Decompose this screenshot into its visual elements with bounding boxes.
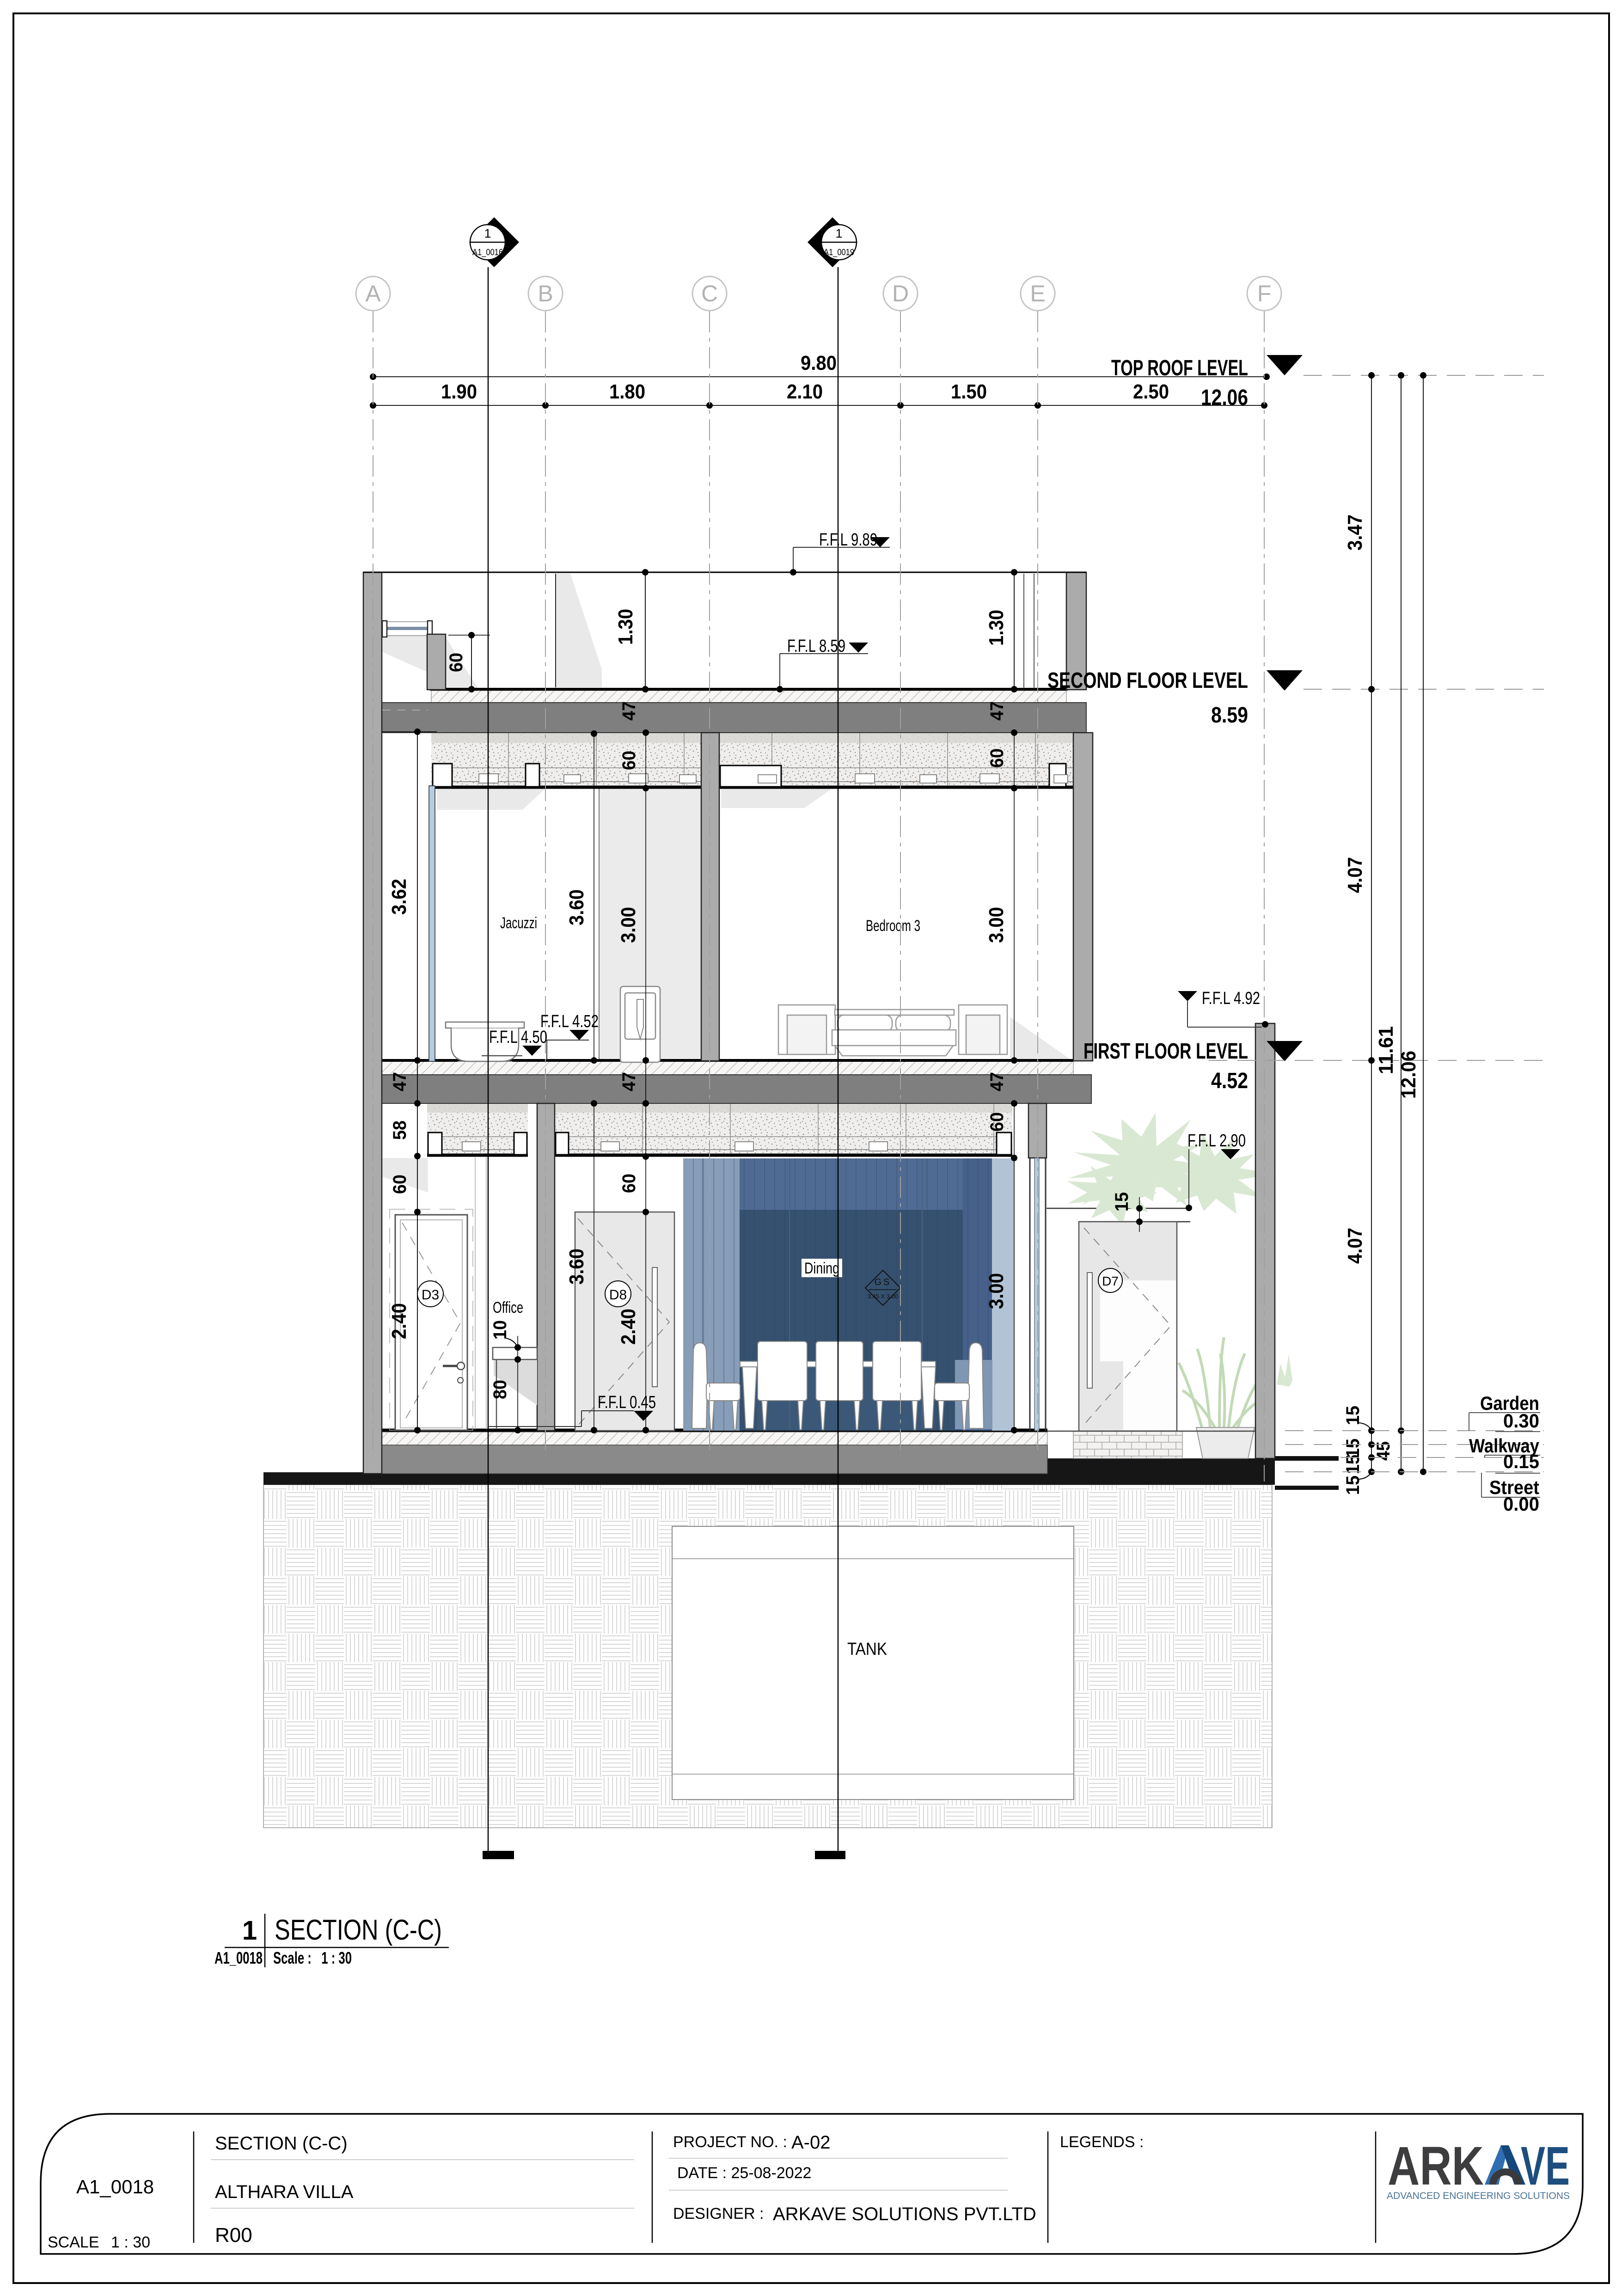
svg-text:1.90: 1.90 (441, 380, 477, 403)
svg-text:TOP ROOF LEVEL: TOP ROOF LEVEL (1111, 356, 1248, 380)
svg-text:0.30: 0.30 (1503, 1410, 1539, 1432)
svg-text:1: 1 (242, 1916, 257, 1946)
svg-text:TANK: TANK (847, 1640, 887, 1659)
svg-text:12.06: 12.06 (1201, 386, 1248, 410)
svg-text:A1_0018: A1_0018 (76, 2176, 154, 2198)
svg-text:80: 80 (490, 1380, 510, 1399)
svg-text:9.80: 9.80 (801, 352, 837, 374)
svg-text:3.45 X 3.00: 3.45 X 3.00 (868, 1293, 899, 1300)
svg-text:Dining: Dining (804, 1260, 839, 1277)
svg-text:2.40: 2.40 (388, 1303, 410, 1339)
svg-text:PROJECT NO. :: PROJECT NO. : (673, 2133, 787, 2151)
svg-text:3.60: 3.60 (565, 1249, 588, 1285)
svg-text:8.59: 8.59 (1211, 703, 1248, 728)
svg-text:D8: D8 (609, 1287, 627, 1303)
svg-text:4.07: 4.07 (1344, 1228, 1366, 1264)
svg-text:D3: D3 (422, 1287, 439, 1303)
svg-text:15: 15 (1112, 1192, 1132, 1212)
svg-text:1: 1 (835, 227, 842, 240)
svg-text:60: 60 (619, 1174, 639, 1193)
svg-text:SCALE: SCALE (48, 2234, 99, 2251)
svg-text:60: 60 (619, 751, 639, 770)
svg-text:2.10: 2.10 (787, 380, 823, 403)
svg-text:3.00: 3.00 (617, 907, 640, 943)
svg-text:60: 60 (390, 1175, 410, 1194)
svg-text:A1_0018: A1_0018 (214, 1948, 263, 1967)
svg-text:C: C (701, 281, 718, 306)
svg-text:A: A (365, 281, 381, 306)
svg-text:11.61: 11.61 (1375, 1026, 1397, 1074)
svg-text:F.F.L 8.59: F.F.L 8.59 (787, 637, 845, 656)
svg-text:A-02: A-02 (791, 2132, 831, 2153)
svg-text:1.80: 1.80 (609, 380, 645, 403)
svg-text:2.40: 2.40 (617, 1309, 640, 1345)
svg-text:58: 58 (390, 1120, 410, 1140)
svg-text:60: 60 (446, 653, 466, 672)
svg-text:60: 60 (987, 1112, 1007, 1132)
svg-text:10: 10 (490, 1320, 510, 1340)
svg-text:VE: VE (1521, 2136, 1570, 2197)
svg-text:0.00: 0.00 (1503, 1493, 1539, 1515)
svg-text:47: 47 (390, 1072, 410, 1091)
svg-text:D7: D7 (1102, 1274, 1119, 1288)
svg-text:1.30: 1.30 (985, 610, 1008, 646)
svg-text:F.F.L 0.45: F.F.L 0.45 (598, 1393, 656, 1412)
svg-text:ARK: ARK (1388, 2136, 1484, 2197)
svg-text:F.F.L 4.52: F.F.L 4.52 (540, 1012, 599, 1031)
svg-text:GS: GS (875, 1277, 892, 1287)
svg-text:F.F.L 4.92: F.F.L 4.92 (1202, 989, 1260, 1008)
svg-text:B: B (538, 281, 553, 306)
svg-text:A1_0019: A1_0019 (824, 248, 854, 257)
svg-text:Scale : 1 : 30: Scale : 1 : 30 (273, 1948, 352, 1967)
svg-text:SECOND FLOOR LEVEL: SECOND FLOOR LEVEL (1047, 668, 1248, 693)
svg-text:ALTHARA VILLA: ALTHARA VILLA (215, 2182, 354, 2202)
svg-text:ADVANCED ENGINEERING SOLUTIONS: ADVANCED ENGINEERING SOLUTIONS (1387, 2191, 1570, 2201)
svg-text:47: 47 (619, 1072, 639, 1091)
svg-text:1.50: 1.50 (951, 380, 987, 403)
svg-text:F.F.L 2.90: F.F.L 2.90 (1187, 1131, 1246, 1151)
svg-text:3.00: 3.00 (985, 1273, 1008, 1309)
svg-text:1.30: 1.30 (614, 609, 637, 645)
svg-text:D: D (892, 281, 909, 306)
svg-text:DESIGNER :: DESIGNER : (673, 2205, 764, 2223)
svg-text:SECTION (C-C): SECTION (C-C) (215, 2133, 348, 2154)
svg-text:Bedroom 3: Bedroom 3 (866, 917, 920, 935)
svg-text:60: 60 (987, 748, 1007, 768)
svg-text:LEGENDS :: LEGENDS : (1060, 2133, 1144, 2151)
svg-text:47: 47 (987, 701, 1007, 721)
svg-text:A1_0016: A1_0016 (472, 248, 503, 257)
svg-text:SECTION (C-C): SECTION (C-C) (275, 1914, 442, 1946)
svg-text:2.50: 2.50 (1133, 380, 1169, 403)
svg-text:F.F.L 9.89: F.F.L 9.89 (819, 530, 877, 550)
svg-text:1: 1 (484, 227, 491, 240)
svg-text:DATE : 25-08-2022: DATE : 25-08-2022 (677, 2164, 811, 2182)
svg-text:0.15: 0.15 (1503, 1451, 1539, 1472)
svg-text:3.47: 3.47 (1344, 514, 1366, 551)
svg-text:Office: Office (493, 1299, 523, 1316)
svg-text:15: 15 (1343, 1476, 1363, 1495)
svg-text:3.00: 3.00 (985, 907, 1008, 943)
svg-text:ARKAVE SOLUTIONS PVT.LTD: ARKAVE SOLUTIONS PVT.LTD (773, 2204, 1036, 2224)
svg-text:3.60: 3.60 (565, 889, 588, 925)
svg-text:Jacuzzi: Jacuzzi (500, 914, 537, 932)
svg-text:47: 47 (619, 701, 639, 721)
svg-text:F.F.L 4.50: F.F.L 4.50 (489, 1028, 547, 1047)
svg-text:4.07: 4.07 (1344, 857, 1366, 893)
svg-text:15: 15 (1343, 1406, 1363, 1425)
svg-text:47: 47 (987, 1072, 1007, 1091)
svg-text:E: E (1030, 281, 1045, 306)
svg-text:R00: R00 (215, 2224, 252, 2247)
svg-text:1 : 30: 1 : 30 (111, 2234, 150, 2251)
svg-text:4.52: 4.52 (1211, 1069, 1248, 1093)
svg-text:3.62: 3.62 (388, 879, 410, 915)
svg-text:F: F (1257, 281, 1272, 306)
